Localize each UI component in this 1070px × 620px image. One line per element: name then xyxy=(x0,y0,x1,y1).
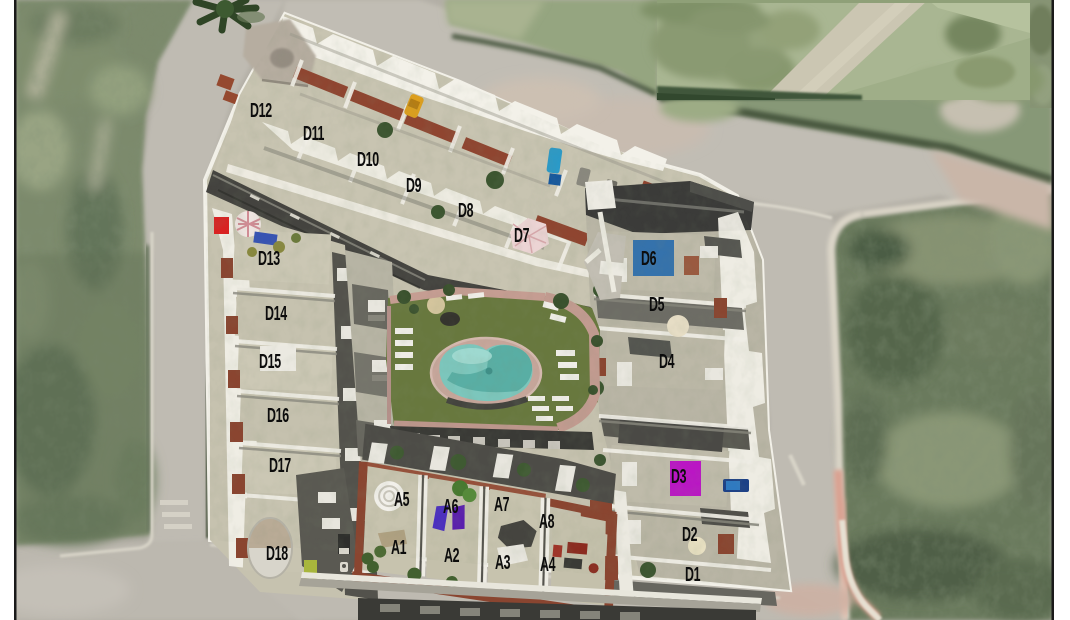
svg-text:A7: A7 xyxy=(494,493,509,516)
svg-text:A2: A2 xyxy=(444,544,459,567)
svg-text:D7: D7 xyxy=(514,224,529,247)
svg-text:D14: D14 xyxy=(265,302,288,325)
svg-text:D9: D9 xyxy=(406,174,421,197)
svg-text:A4: A4 xyxy=(540,553,556,576)
svg-text:A3: A3 xyxy=(495,551,510,574)
svg-text:A1: A1 xyxy=(391,536,406,559)
svg-text:D18: D18 xyxy=(266,542,288,565)
svg-text:D2: D2 xyxy=(682,523,697,546)
svg-text:D8: D8 xyxy=(458,199,473,222)
svg-text:D16: D16 xyxy=(267,404,289,427)
svg-text:A6: A6 xyxy=(443,495,458,518)
svg-text:D17: D17 xyxy=(269,454,291,477)
svg-text:D13: D13 xyxy=(258,247,280,270)
svg-text:D12: D12 xyxy=(250,99,272,122)
svg-text:D5: D5 xyxy=(649,293,664,316)
svg-text:D4: D4 xyxy=(659,350,675,373)
svg-text:D10: D10 xyxy=(357,148,379,171)
svg-text:D11: D11 xyxy=(303,122,324,145)
svg-text:A8: A8 xyxy=(539,510,554,533)
svg-text:D6: D6 xyxy=(641,247,656,270)
svg-text:D15: D15 xyxy=(259,350,281,373)
svg-text:A5: A5 xyxy=(394,488,409,511)
svg-text:D1: D1 xyxy=(685,563,700,586)
svg-text:D3: D3 xyxy=(671,465,686,488)
